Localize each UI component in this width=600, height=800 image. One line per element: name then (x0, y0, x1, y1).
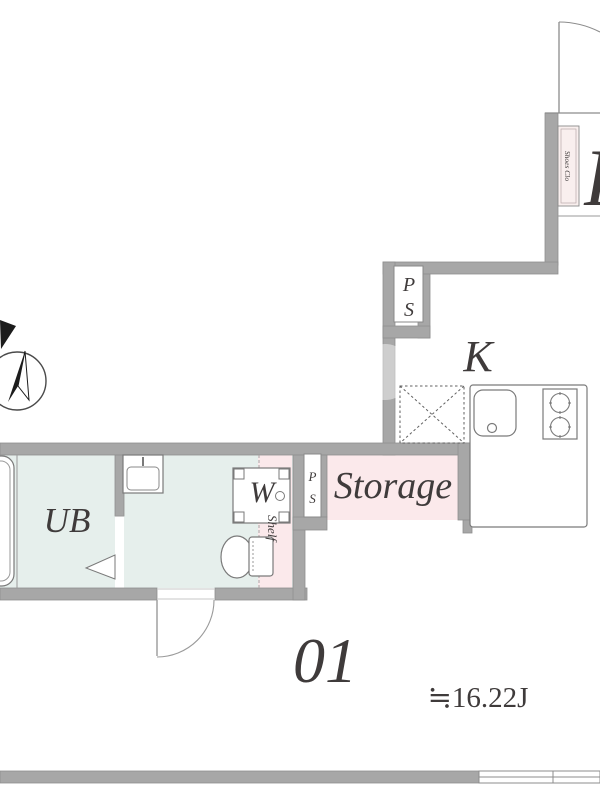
pipe-shaft-1: P S (394, 266, 423, 322)
unit-number-label: 01 (293, 625, 357, 696)
ps1-label-p: P (402, 274, 415, 296)
ps2-box (304, 454, 321, 517)
ps2-label-p: P (308, 469, 317, 484)
storage-label: Storage (334, 465, 452, 507)
shelf-label: Shelf (265, 515, 280, 543)
ps2-bottom-wall (293, 517, 327, 530)
bathroom-door (157, 589, 215, 657)
refrigerator-space (400, 386, 464, 443)
toilet-bowl (221, 536, 253, 578)
washer-hose-point (276, 492, 285, 501)
bathroom-door-arc (157, 600, 214, 657)
bath-bottom-wall-left (0, 588, 157, 600)
compass-needle-light (18, 351, 29, 400)
bathtub (0, 456, 14, 586)
ps1-bottom-wall (383, 326, 430, 338)
unit-bath-label: UB (44, 501, 91, 540)
entrance-door-arc (559, 22, 600, 32)
ps1-label-s: S (404, 299, 414, 321)
compass-north-tip (0, 320, 16, 349)
entrance-side-wall (545, 113, 558, 265)
shoes-closet-label: Shoes Clo (563, 151, 572, 181)
sink-drain (488, 424, 497, 433)
bottom-outer-wall (0, 771, 479, 783)
washer-label: W (250, 476, 278, 509)
compass-icon (0, 320, 46, 410)
window (479, 771, 600, 783)
partial-room-label: R (583, 132, 600, 223)
kitchen-label: K (462, 332, 495, 381)
pipe-shaft-2: P S (304, 454, 321, 517)
area-label: ≒16.22J (428, 682, 529, 714)
floor-plan: Shoes Clo P S P S (0, 0, 600, 800)
watermark-blob (357, 344, 413, 400)
floor-plan-page: Shoes Clo P S P S (0, 0, 600, 800)
bath-block-top-wall (0, 443, 472, 455)
ps2-label-s: S (309, 491, 316, 506)
